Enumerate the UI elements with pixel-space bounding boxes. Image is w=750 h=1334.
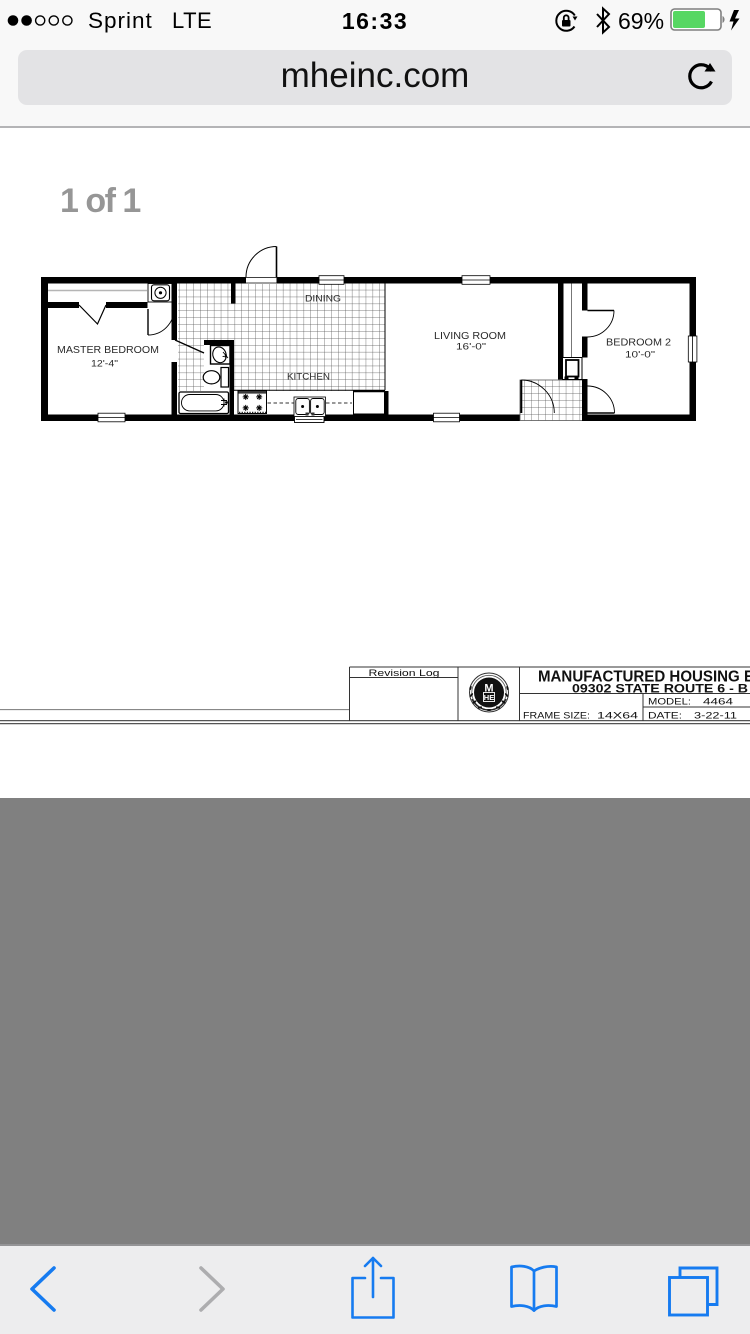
svg-text:10'-0": 10'-0" <box>625 350 655 361</box>
svg-text:14X64: 14X64 <box>597 711 638 722</box>
svg-text:12'-4": 12'-4" <box>91 359 118 370</box>
svg-text:DINING: DINING <box>305 294 341 304</box>
svg-text:BEDROOM 2: BEDROOM 2 <box>606 338 671 349</box>
svg-text:MASTER BEDROOM: MASTER BEDROOM <box>57 345 159 356</box>
svg-text:Revision Log: Revision Log <box>369 668 440 679</box>
svg-text:FRAME SIZE:: FRAME SIZE: <box>523 711 590 722</box>
svg-text:DATE:: DATE: <box>648 711 682 722</box>
svg-text:4464: 4464 <box>703 697 733 708</box>
svg-text:MODEL:: MODEL: <box>648 697 691 708</box>
svg-text:KITCHEN: KITCHEN <box>287 372 330 383</box>
svg-text:LIVING ROOM: LIVING ROOM <box>434 331 506 342</box>
svg-text:16'-0": 16'-0" <box>456 342 486 353</box>
svg-text:09302 STATE ROUTE 6 - B: 09302 STATE ROUTE 6 - B <box>572 682 748 696</box>
svg-text:3-22-11: 3-22-11 <box>694 711 737 722</box>
svg-text:HE: HE <box>484 693 494 702</box>
